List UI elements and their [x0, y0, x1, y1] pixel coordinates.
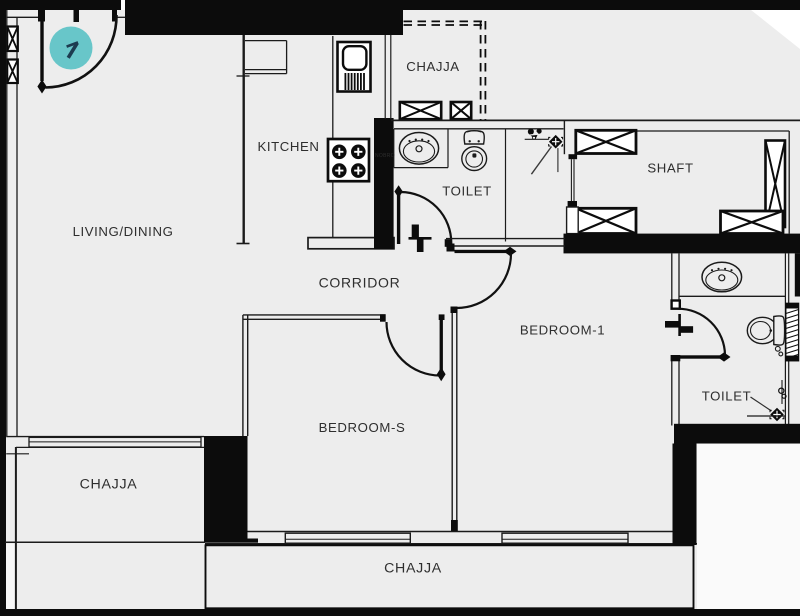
svg-text:TOILET: TOILET [702, 388, 752, 403]
svg-text:LIVING/DINING: LIVING/DINING [73, 224, 174, 239]
svg-text:BEDROOM-S: BEDROOM-S [319, 420, 406, 435]
svg-text:TOILET: TOILET [442, 183, 492, 198]
svg-text:CORRIDOR: CORRIDOR [319, 274, 401, 290]
svg-text:SHAFT: SHAFT [647, 161, 693, 176]
svg-text:CHAJJA: CHAJJA [80, 477, 138, 493]
svg-text:KITCHEN: KITCHEN [257, 139, 319, 154]
svg-text:BEDROOM-1: BEDROOM-1 [520, 322, 605, 337]
svg-text:CHAJJA: CHAJJA [406, 59, 459, 74]
svg-text:NOBRO: NOBRO [375, 153, 395, 159]
svg-text:CHAJJA: CHAJJA [384, 561, 442, 577]
